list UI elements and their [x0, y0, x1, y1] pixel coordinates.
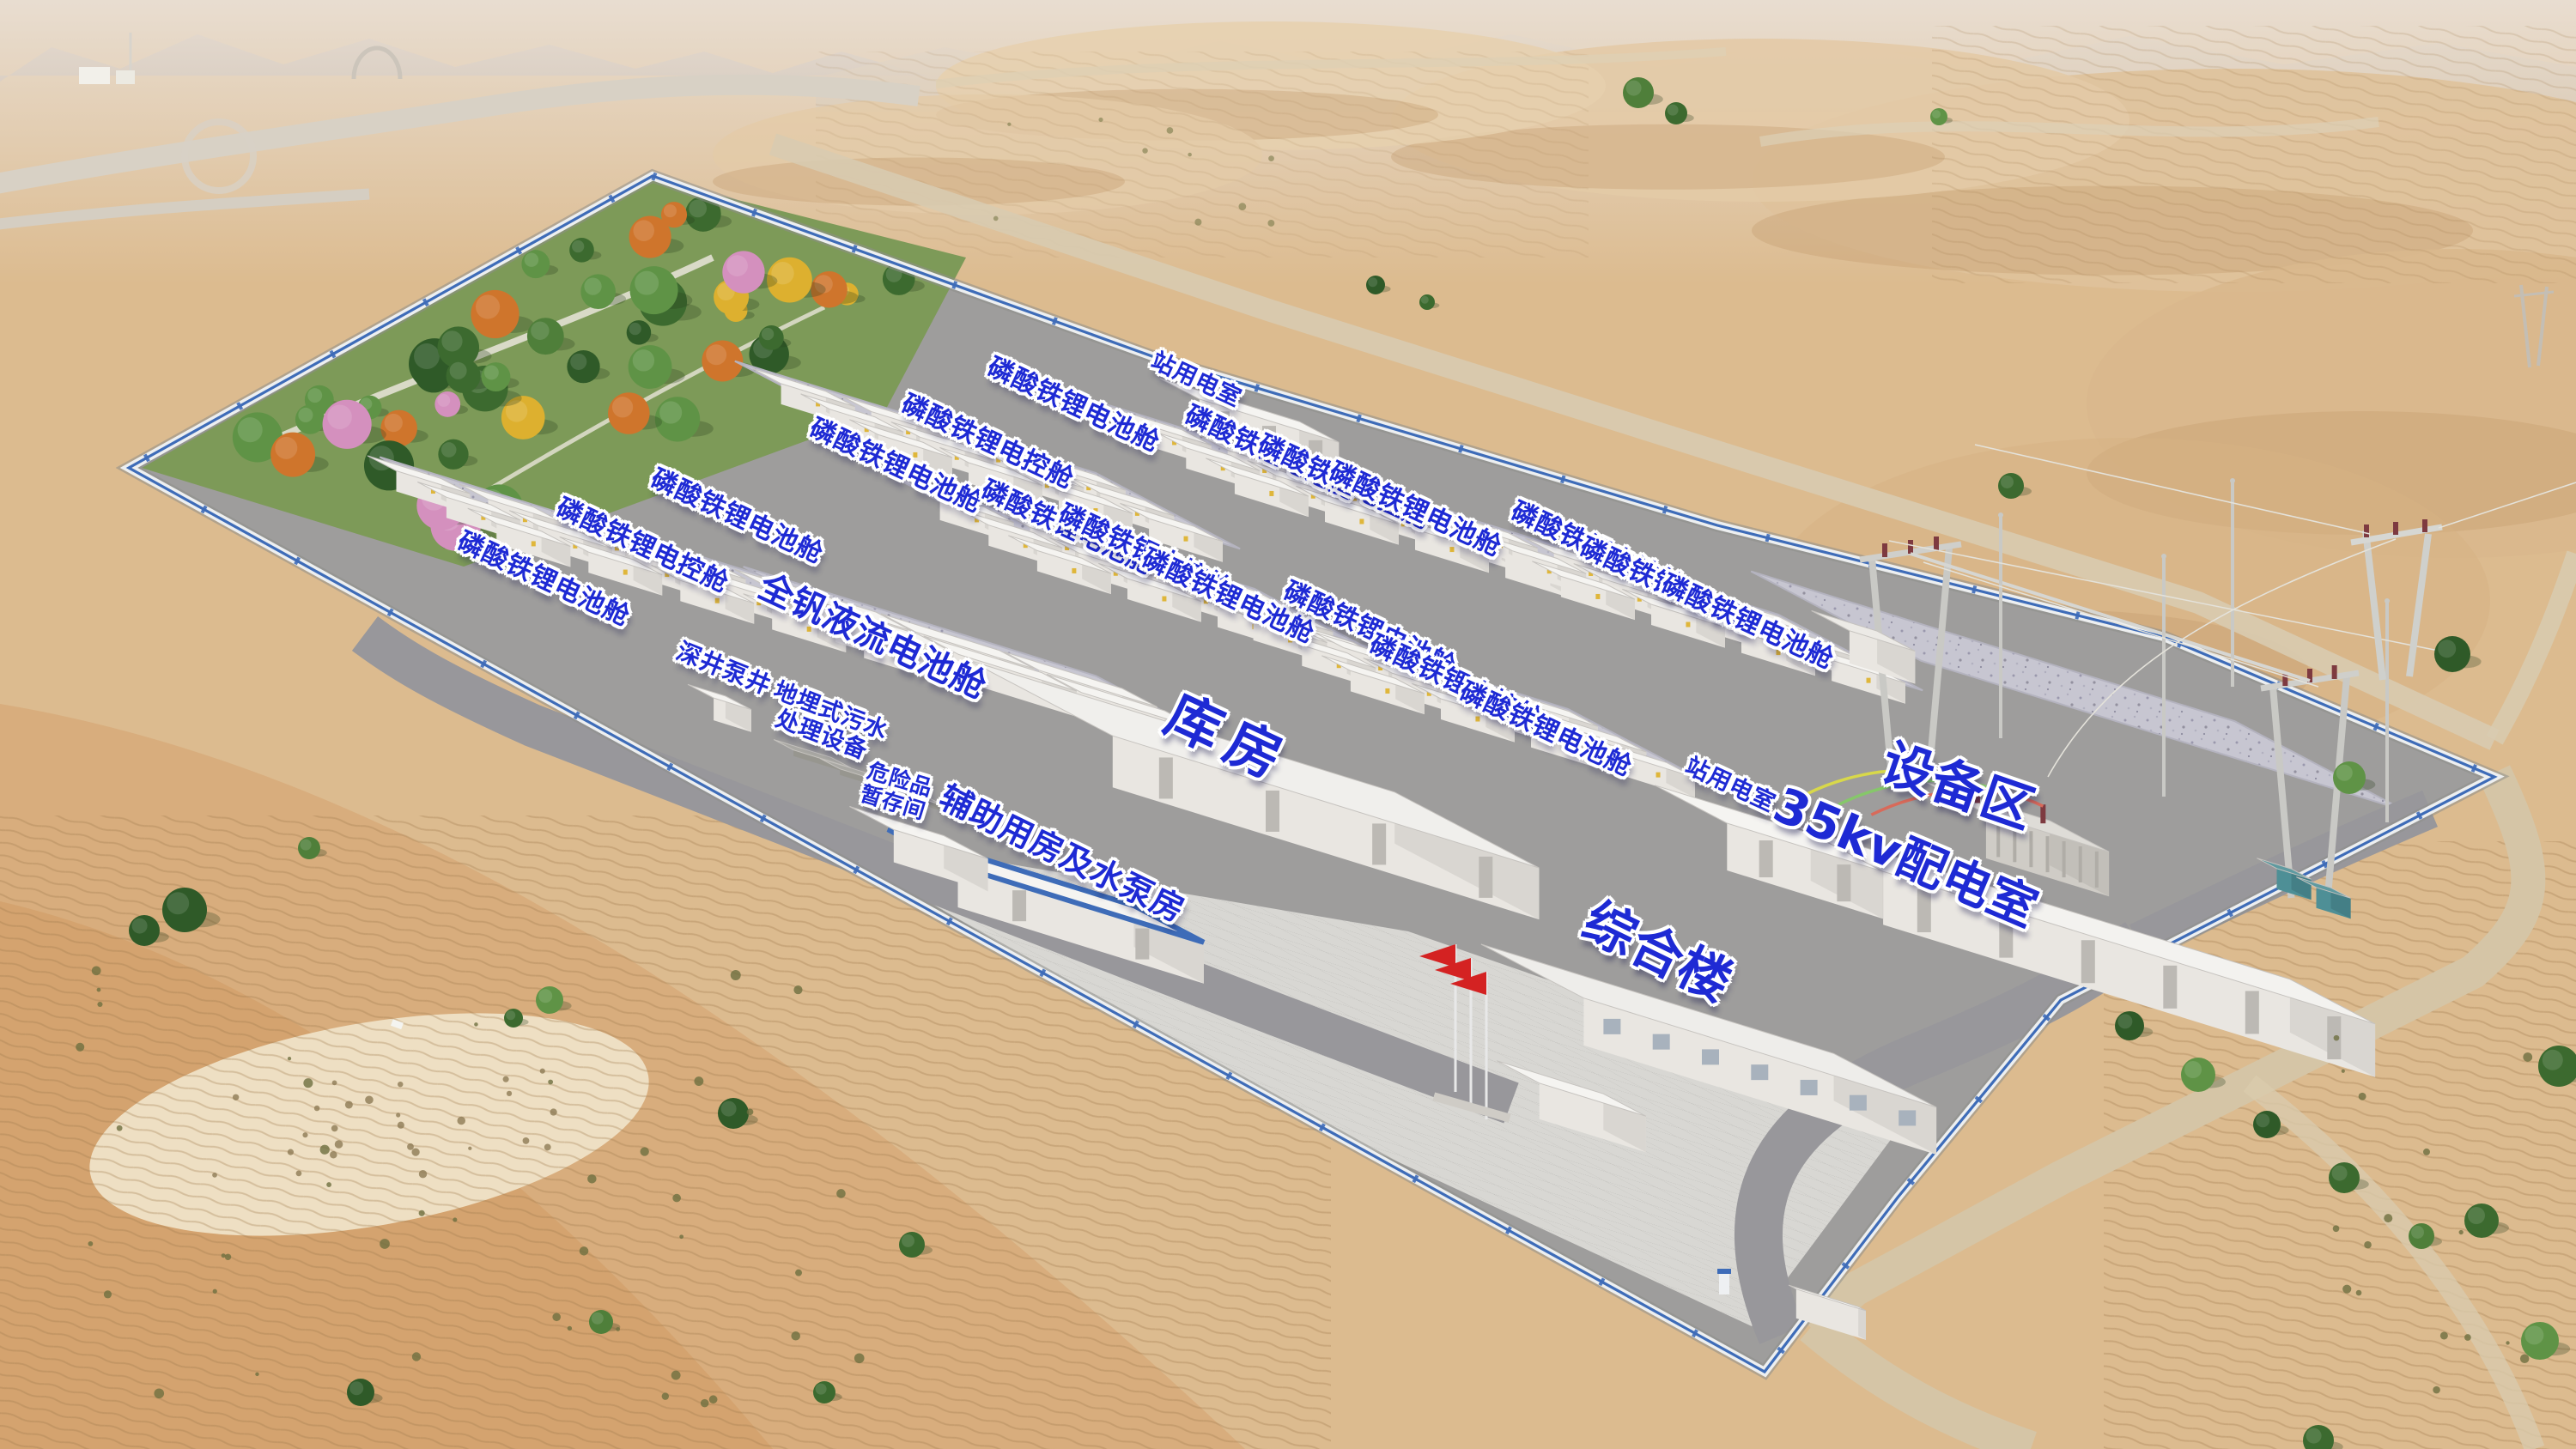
tree-highlight [385, 414, 403, 432]
warning-mark [1686, 622, 1690, 627]
debris [419, 1170, 427, 1178]
debris [345, 1100, 353, 1108]
scrub [795, 1270, 802, 1276]
scrub [2333, 1225, 2340, 1232]
scrub [1238, 203, 1246, 210]
door [1372, 823, 1386, 864]
insulator [2332, 665, 2337, 679]
door [1759, 840, 1773, 877]
mast-tip [2230, 478, 2235, 483]
scrub [2356, 1290, 2362, 1296]
scrub [97, 1002, 102, 1007]
scrub [587, 1174, 596, 1183]
warning-mark [1184, 537, 1188, 542]
tree-highlight [2524, 1325, 2543, 1344]
warning-mark [913, 452, 917, 458]
tree-highlight [1421, 296, 1429, 304]
tree-highlight [2411, 1226, 2424, 1239]
debris [396, 1113, 400, 1117]
window [1801, 1080, 1818, 1095]
door [1479, 857, 1492, 898]
warning-mark [807, 627, 811, 632]
scrub [1007, 123, 1011, 126]
tree-highlight [592, 1313, 604, 1325]
mast-tip [2385, 598, 2390, 603]
scrub [154, 1388, 164, 1398]
scrub [303, 1078, 313, 1088]
debris [507, 1091, 512, 1096]
tree-highlight [2001, 476, 2014, 488]
tree-highlight [664, 204, 677, 217]
warning-mark [623, 570, 628, 575]
scrub [380, 1239, 390, 1249]
window [1653, 1034, 1670, 1050]
tree-highlight [726, 255, 748, 276]
scrub [641, 1147, 649, 1155]
scrub [453, 1217, 457, 1222]
tree-highlight [2332, 1166, 2348, 1181]
scrub [2342, 1285, 2351, 1294]
bushing [2008, 794, 2013, 813]
debris [332, 1080, 337, 1085]
warning-mark [1776, 650, 1780, 655]
scrub [548, 1080, 553, 1085]
scrub [326, 1182, 331, 1187]
door [1266, 791, 1279, 832]
tree-highlight [635, 271, 659, 295]
window [1702, 1049, 1719, 1064]
scrub [76, 1043, 84, 1052]
tree-highlight [238, 417, 263, 442]
debris [398, 1082, 403, 1087]
scrub [1268, 155, 1274, 161]
tree-highlight [633, 349, 654, 371]
debris [331, 1125, 338, 1132]
tree-highlight [132, 919, 148, 934]
warning-mark [1269, 491, 1273, 496]
scrub [419, 1210, 425, 1216]
warning-mark [1475, 717, 1479, 722]
debris [411, 1148, 419, 1155]
tree-highlight [570, 354, 586, 370]
scrub [474, 1022, 478, 1027]
scrub [836, 1189, 846, 1198]
door [1012, 890, 1026, 921]
tree-highlight [2468, 1207, 2485, 1224]
tree-highlight [298, 408, 313, 422]
warning-mark [1385, 688, 1389, 694]
tree-highlight [2184, 1061, 2202, 1078]
scrub [793, 985, 802, 994]
window [1751, 1064, 1768, 1080]
insulator [1934, 537, 1939, 550]
sand-striation [816, 52, 1589, 258]
door [1216, 411, 1230, 430]
scrub [1194, 219, 1201, 226]
debris [457, 1117, 465, 1125]
scrub [1267, 220, 1274, 227]
scrub [2459, 1230, 2464, 1234]
debris [468, 1147, 471, 1150]
site-rendering-canvas [0, 0, 2576, 1449]
scrub [2464, 1334, 2471, 1341]
insulator [2393, 522, 2398, 535]
debris [503, 1076, 509, 1082]
warning-mark [1565, 744, 1570, 749]
insulator [1882, 543, 1887, 557]
tree-highlight [659, 401, 682, 423]
tree-highlight [2256, 1113, 2269, 1127]
window [1899, 1110, 1916, 1125]
scrub [731, 970, 741, 980]
debris [335, 1140, 343, 1149]
tree-highlight [2336, 765, 2353, 781]
door [1917, 889, 1931, 932]
scrub [791, 1331, 800, 1341]
scrub [662, 1392, 669, 1399]
door [2163, 966, 2177, 1009]
scrub [2523, 1052, 2532, 1062]
tree-highlight [816, 1384, 827, 1395]
scrub [213, 1289, 217, 1294]
debris [288, 1149, 294, 1155]
scrub [412, 1352, 421, 1361]
scrub [117, 1125, 123, 1131]
tree-highlight [450, 362, 467, 379]
tree-highlight [506, 1010, 515, 1020]
tree-highlight [1668, 105, 1679, 116]
aerial-rendering: 站用电室 磷酸铁锂电池舱 磷酸铁锂电控舱 磷酸铁锂电池舱 磷酸铁锂电池舱 磷酸铁… [0, 0, 2576, 1449]
scrub [1098, 118, 1103, 122]
scrub [104, 1290, 112, 1298]
debris [540, 1069, 545, 1074]
scrub [709, 1395, 718, 1404]
mast-tip [1998, 512, 2003, 518]
tree-highlight [167, 892, 189, 914]
scrub [694, 1076, 703, 1086]
door [1999, 915, 2013, 958]
tree-highlight [441, 330, 462, 351]
tree-highlight [2438, 640, 2456, 658]
scrub [288, 1057, 291, 1060]
warning-mark [532, 541, 536, 546]
scrub [92, 966, 101, 975]
insulator [1908, 540, 1913, 554]
scrub [679, 1234, 683, 1239]
scrub [854, 1353, 865, 1363]
scrub [747, 1108, 754, 1115]
distant-facility [79, 67, 110, 84]
debris [550, 1108, 556, 1115]
door [1309, 440, 1322, 459]
scrub [2520, 1354, 2530, 1363]
warning-mark [1595, 594, 1600, 599]
tree-highlight [902, 1234, 914, 1247]
gate-sign-wall-side [1858, 1307, 1866, 1340]
tree-highlight [441, 442, 457, 458]
tree-highlight [484, 365, 499, 379]
scrub [2364, 1241, 2372, 1249]
scrub [1142, 148, 1147, 153]
mast-tip [2161, 554, 2166, 559]
distant-facility [116, 70, 135, 84]
door [2245, 991, 2259, 1034]
scrub [672, 1194, 681, 1203]
tree-highlight [762, 328, 774, 340]
tree-highlight [706, 344, 726, 365]
sand-striation [1932, 26, 2576, 283]
tree-highlight [633, 220, 654, 241]
warning-mark [715, 598, 720, 603]
tree-highlight [689, 200, 707, 218]
gate-pillar-cap [1717, 1269, 1731, 1274]
warning-mark [1093, 508, 1097, 513]
warning-mark [1072, 568, 1076, 573]
warning-mark [1656, 773, 1661, 778]
tree-highlight [572, 240, 584, 252]
tree-highlight [307, 388, 322, 403]
scrub [2433, 1386, 2440, 1394]
tree-highlight [1626, 81, 1642, 96]
scrub [2506, 1341, 2509, 1344]
tree-highlight [525, 252, 538, 266]
debris [398, 1122, 404, 1129]
scrub [568, 1326, 572, 1331]
debris [523, 1137, 530, 1144]
scrub [1188, 153, 1192, 157]
debris [212, 1173, 217, 1178]
scrub [993, 216, 999, 221]
debris [544, 1143, 551, 1150]
tree-highlight [531, 322, 549, 340]
scrub [701, 1399, 709, 1408]
scrub [2384, 1214, 2392, 1222]
door [1159, 757, 1173, 798]
scrub [2342, 1070, 2345, 1073]
warning-mark [1003, 481, 1007, 486]
scrub [320, 1145, 330, 1155]
warning-mark [1359, 519, 1364, 524]
scrub [255, 1373, 258, 1376]
scrub [580, 1246, 589, 1256]
warning-mark [1867, 678, 1871, 683]
debris [365, 1095, 374, 1104]
scrub [2334, 1035, 2340, 1041]
tree-highlight [301, 840, 312, 851]
scrub [2440, 1331, 2448, 1339]
tree-highlight [1932, 110, 1941, 118]
tree-highlight [584, 277, 601, 294]
scrub [1167, 127, 1174, 134]
debris [302, 1132, 307, 1137]
insulator [2422, 519, 2427, 532]
scrub [225, 1254, 231, 1260]
tree-highlight [327, 404, 352, 429]
debris [407, 1143, 414, 1150]
scrub [2423, 1149, 2430, 1155]
scrub [97, 988, 101, 992]
window [1850, 1095, 1867, 1111]
door [1837, 864, 1850, 901]
door [2081, 940, 2095, 983]
tree-highlight [2543, 1050, 2563, 1070]
warning-mark [1449, 547, 1454, 552]
tree-highlight [2306, 1428, 2322, 1444]
scrub [671, 1371, 681, 1380]
debris [330, 1151, 337, 1159]
door [1135, 929, 1149, 960]
scrub [552, 1313, 561, 1321]
tree-highlight [349, 1381, 363, 1395]
debris [233, 1094, 239, 1100]
tree-highlight [1368, 277, 1377, 287]
bushing [1975, 785, 1980, 803]
tree-highlight [414, 343, 440, 369]
scrub [2359, 1093, 2366, 1100]
gate-pillar [1719, 1272, 1729, 1294]
tree-highlight [275, 437, 297, 459]
tree-highlight [721, 1101, 737, 1117]
debris [296, 1171, 302, 1177]
door [1262, 426, 1276, 445]
tree-highlight [538, 989, 552, 1003]
tree-highlight [2117, 1014, 2132, 1028]
window [1603, 1019, 1620, 1034]
insulator [2364, 524, 2369, 537]
tree-highlight [476, 294, 500, 318]
debris [314, 1106, 320, 1112]
tree-highlight [629, 323, 641, 335]
tree-highlight [612, 397, 633, 417]
tree-highlight [437, 394, 450, 407]
scrub [88, 1241, 93, 1246]
warning-mark [1162, 597, 1166, 602]
bushing [2040, 804, 2045, 823]
scrub [616, 1327, 620, 1331]
